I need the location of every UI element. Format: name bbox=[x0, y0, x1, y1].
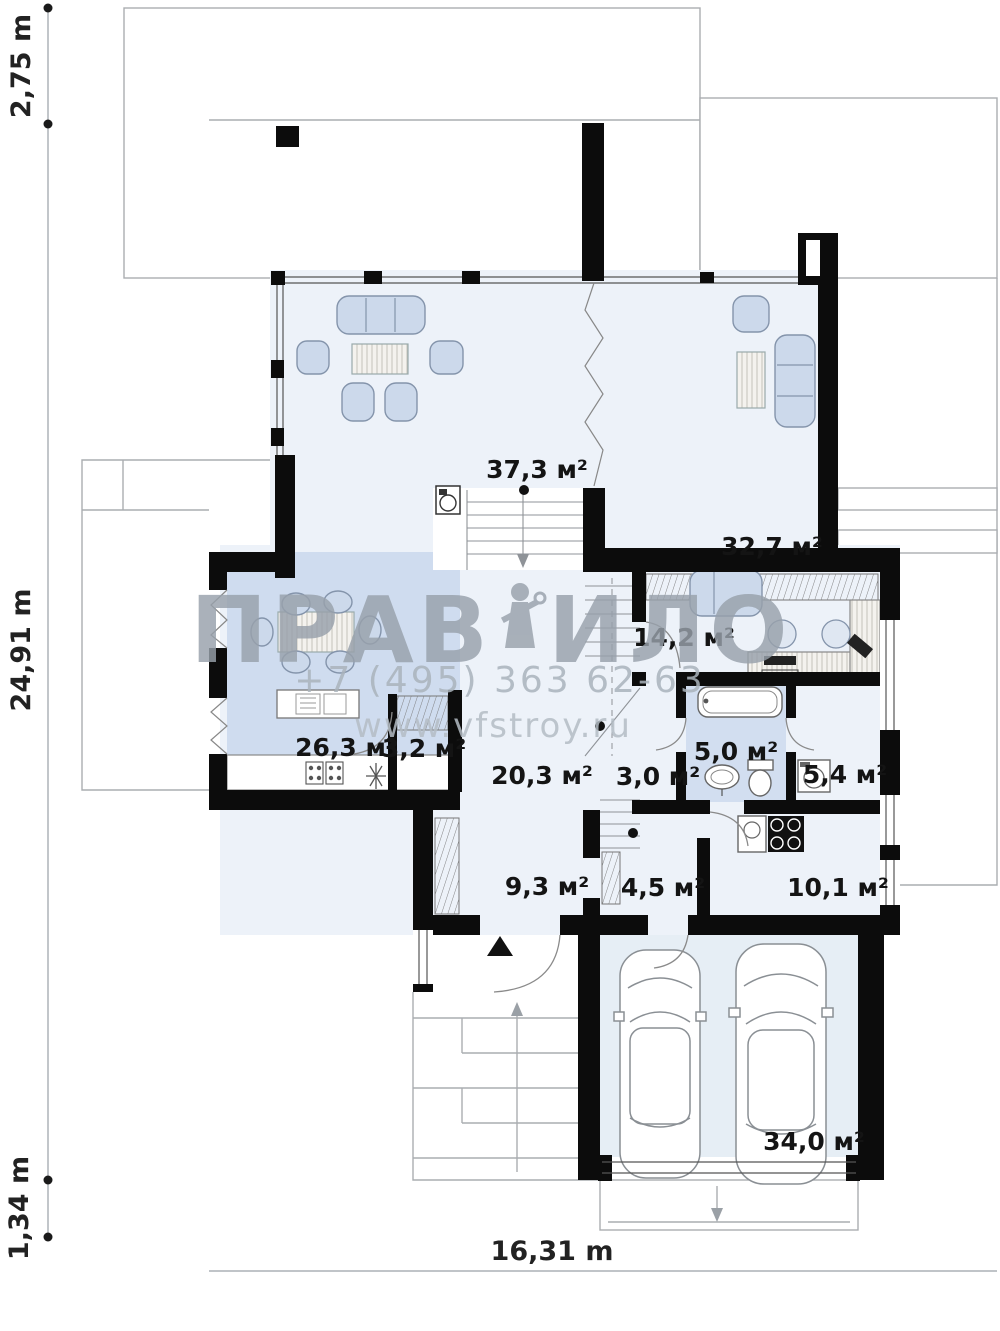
steps-arrow bbox=[511, 1002, 523, 1016]
entrance-arrow bbox=[487, 936, 513, 956]
car bbox=[614, 950, 706, 1178]
sink bbox=[705, 765, 739, 789]
coffee-table bbox=[737, 352, 765, 408]
terrace-top-right bbox=[700, 98, 997, 278]
mullion bbox=[271, 428, 284, 446]
floor-plan-canvas: 37,3 м² 32,7 м² 14,2 м² 26,3 м² 3,2 м² 2… bbox=[0, 0, 1000, 1331]
stairs-main bbox=[433, 486, 583, 570]
chair bbox=[342, 383, 374, 421]
room-label-living: 37,3 м² bbox=[486, 455, 588, 484]
office-chair bbox=[822, 620, 850, 648]
sofa bbox=[775, 335, 815, 427]
toilet bbox=[749, 770, 771, 796]
room-label-room: 10,1 м² bbox=[787, 873, 889, 902]
armchair bbox=[733, 296, 769, 332]
dimension-left-bottom: 1,34 m bbox=[4, 1156, 35, 1260]
kitchenette bbox=[738, 816, 804, 852]
room-label-corridor: 4,5 м² bbox=[621, 873, 705, 902]
garage-apron bbox=[600, 1180, 858, 1230]
room-label-garage: 34,0 м² bbox=[763, 1127, 865, 1156]
property-line-right bbox=[900, 278, 997, 885]
closet-entry bbox=[435, 818, 459, 914]
dimension-bottom: 16,31 m bbox=[491, 1236, 614, 1267]
room-label-wc-lobby: 3,0 м² bbox=[616, 762, 700, 791]
room-label-entry: 9,3 м² bbox=[505, 872, 589, 901]
room-label-bathroom: 5,0 м² bbox=[694, 737, 778, 766]
dining-table bbox=[352, 344, 408, 374]
room-label-salon: 32,7 м² bbox=[721, 532, 823, 561]
armchair bbox=[297, 341, 329, 374]
closet-corridor bbox=[602, 852, 620, 904]
dimension-left-top: 2,75 m bbox=[6, 14, 37, 118]
terrace-top bbox=[124, 8, 700, 278]
watermark-phone: +7 (495) 363 62-63 bbox=[294, 660, 706, 701]
room-label-utility: 5,4 м² bbox=[803, 760, 887, 789]
watermark-website: www.vfstroy.ru bbox=[354, 706, 632, 746]
floor-plan-drawing: 37,3 м² 32,7 м² 14,2 м² 26,3 м² 3,2 м² 2… bbox=[0, 0, 1000, 1331]
mullion bbox=[271, 360, 284, 378]
mullion bbox=[700, 272, 714, 283]
mullion bbox=[462, 271, 480, 284]
chimney bbox=[276, 126, 299, 147]
room-label-hall: 20,3 м² bbox=[491, 761, 593, 790]
chair bbox=[385, 383, 417, 421]
mullion bbox=[364, 271, 382, 284]
steps-right bbox=[838, 488, 997, 510]
porch-steps bbox=[413, 992, 600, 1180]
armchair bbox=[430, 341, 463, 374]
dimension-left-main: 24,91 m bbox=[6, 589, 37, 712]
